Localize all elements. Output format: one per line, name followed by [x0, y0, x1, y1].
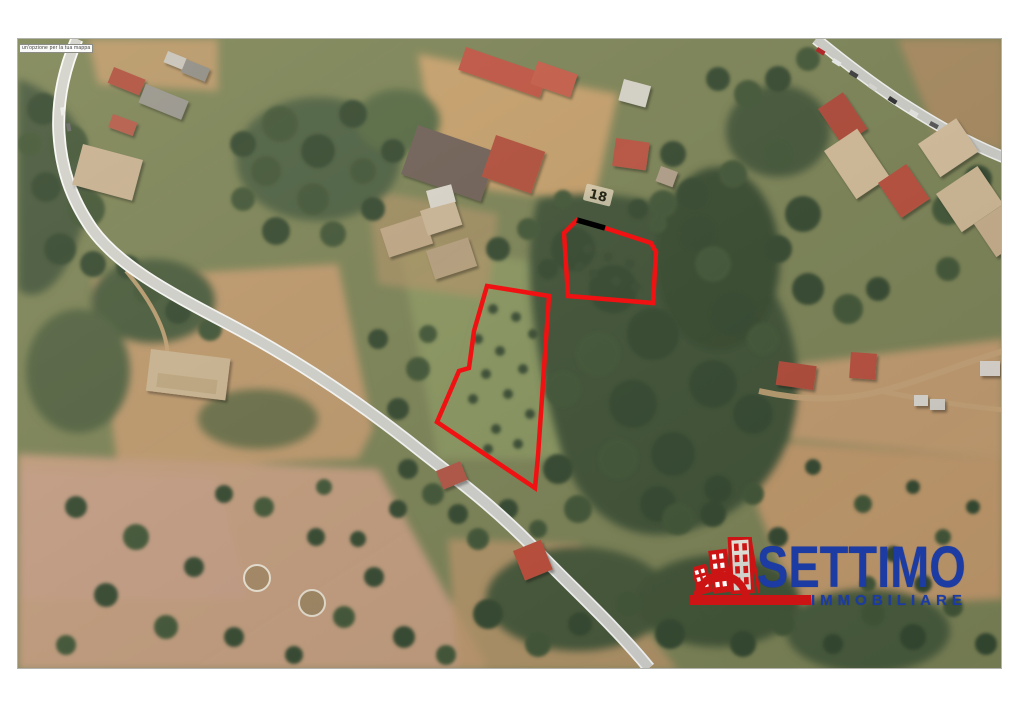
logo-subtitle: IMMOBILIARE	[811, 592, 967, 609]
attribution-label: un'opzione per la tua mappa	[19, 44, 93, 53]
aerial-photo: 18 un'opzione per la tua mappa	[17, 38, 1002, 669]
agency-logo: SETTIMO IMMOBILIARE	[673, 501, 988, 613]
logo-red-bar	[690, 595, 811, 605]
page: { "attribution_label": "un'opzione per l…	[0, 0, 1019, 720]
logo-title: SETTIMO	[757, 545, 966, 591]
